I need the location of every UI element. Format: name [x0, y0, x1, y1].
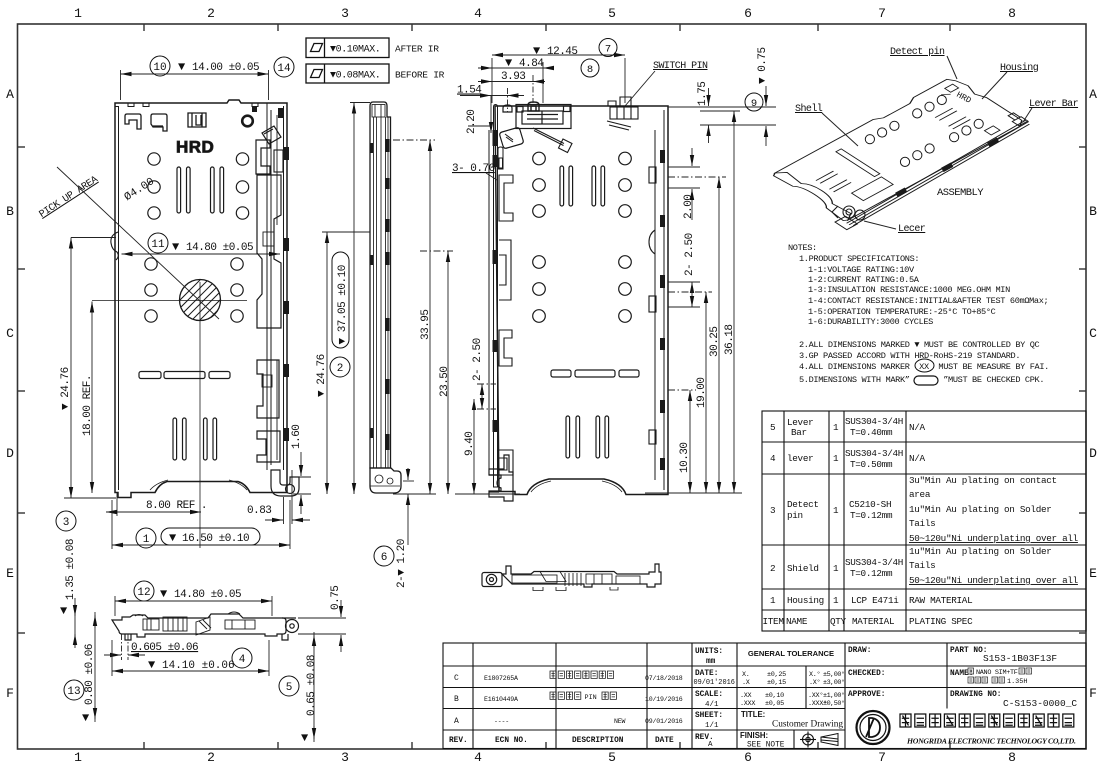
svg-text:C: C — [6, 326, 14, 341]
svg-text:.XX: .XX — [740, 692, 752, 700]
svg-text:4: 4 — [474, 750, 482, 765]
svg-text:Tails: Tails — [909, 518, 935, 529]
svg-text:APPROVE:: APPROVE: — [848, 691, 885, 699]
svg-text:▼: ▼ — [82, 711, 90, 725]
svg-text:area: area — [909, 489, 931, 500]
svg-text:14: 14 — [277, 63, 291, 75]
svg-text:12.45: 12.45 — [547, 46, 578, 58]
svg-text:REV.: REV. — [449, 737, 468, 745]
svg-text:D: D — [1089, 446, 1097, 461]
svg-text:3: 3 — [341, 6, 349, 21]
svg-text:A: A — [1089, 87, 1097, 102]
svg-text:S153-1B03F13F: S153-1B03F13F — [983, 653, 1057, 664]
svg-text:7: 7 — [878, 6, 886, 21]
svg-text:6: 6 — [381, 552, 388, 564]
svg-text:UNITS:: UNITS: — [695, 648, 723, 656]
svg-text:1.35H: 1.35H — [1007, 678, 1027, 686]
svg-text:▼: ▼ — [172, 240, 180, 254]
svg-text:0.75: 0.75 — [330, 586, 342, 610]
svg-text:T=0.12mm: T=0.12mm — [850, 510, 893, 521]
svg-text:4: 4 — [770, 453, 776, 464]
svg-text:HRD: HRD — [176, 138, 214, 157]
svg-text:30.25: 30.25 — [709, 326, 721, 357]
svg-text:1: 1 — [74, 6, 82, 21]
svg-text:3.93: 3.93 — [501, 71, 525, 83]
svg-text:12: 12 — [137, 587, 150, 599]
svg-text:2: 2 — [770, 563, 775, 574]
svg-text:±0,25: ±0,25 — [767, 671, 786, 679]
svg-text:NANO SIM+TF: NANO SIM+TF — [976, 669, 1018, 677]
svg-text:.X: .X — [742, 679, 750, 687]
svg-text:pin: pin — [787, 510, 803, 521]
svg-text:▼0.08MAX.: ▼0.08MAX. — [330, 71, 380, 82]
svg-text:ECN NO.: ECN NO. — [495, 737, 528, 745]
svg-text:Bar: Bar — [791, 427, 807, 438]
svg-text:13: 13 — [67, 686, 80, 698]
svg-text:4: 4 — [474, 6, 482, 21]
svg-text:BEFORE IR: BEFORE IR — [395, 70, 445, 81]
svg-text:SEE NOTE: SEE NOTE — [747, 742, 785, 750]
svg-text:▼: ▼ — [533, 44, 541, 58]
svg-text:1u″Min Au plating on Solder: 1u″Min Au plating on Solder — [909, 504, 1052, 515]
svg-text:▼ 24.76: ▼ 24.76 — [60, 367, 72, 410]
svg-text:1: 1 — [770, 595, 776, 606]
svg-text:Detect: Detect — [787, 499, 819, 510]
svg-text:F: F — [1089, 686, 1097, 701]
svg-text:5: 5 — [770, 422, 775, 433]
svg-text:Shield: Shield — [787, 563, 819, 574]
svg-text:4: 4 — [239, 654, 246, 666]
svg-text:±0,05: ±0,05 — [765, 700, 784, 708]
svg-text:DESCRIPTION: DESCRIPTION — [572, 737, 624, 745]
svg-text:B: B — [1089, 204, 1097, 219]
svg-text:CHECKED:: CHECKED: — [848, 670, 885, 678]
svg-text:SCALE:: SCALE: — [695, 691, 723, 699]
svg-text:6: 6 — [744, 750, 752, 765]
svg-text:FINISH:: FINISH: — [740, 731, 768, 740]
svg-text:▼0.10MAX.: ▼0.10MAX. — [330, 45, 380, 56]
svg-text:5: 5 — [608, 6, 616, 21]
svg-text:5: 5 — [608, 750, 616, 765]
svg-text:.XX°: .XX° — [808, 691, 823, 700]
svg-text:±1,00°: ±1,00° — [823, 691, 844, 700]
svg-text:DRAWING NO:: DRAWING NO: — [950, 691, 1001, 699]
svg-text:1/1: 1/1 — [705, 722, 719, 730]
svg-text:36.18: 36.18 — [724, 324, 736, 355]
svg-text:8.00 REF .: 8.00 REF . — [146, 500, 207, 512]
svg-text:C: C — [454, 674, 459, 683]
svg-text:▼: ▼ — [148, 658, 156, 672]
svg-text:SUS304-3/4H: SUS304-3/4H — [845, 557, 903, 568]
svg-text:DATE:: DATE: — [695, 670, 718, 678]
svg-text:0.83: 0.83 — [247, 505, 271, 517]
svg-text:mm: mm — [706, 658, 716, 666]
svg-text:8: 8 — [1008, 6, 1016, 21]
svg-text:N/A: N/A — [909, 453, 926, 464]
svg-text:1-3:INSULATION RESISTANCE:1000: 1-3:INSULATION RESISTANCE:1000 MEG.OHM M… — [808, 285, 1010, 295]
svg-text:Housing: Housing — [787, 595, 824, 606]
svg-text:▼ 0.75: ▼ 0.75 — [757, 47, 769, 84]
svg-text:14.00 ±0.05: 14.00 ±0.05 — [192, 62, 259, 74]
svg-text:A: A — [454, 717, 459, 726]
svg-text:1: 1 — [833, 563, 839, 574]
svg-text:1-2:CURRENT RATING:0.5A: 1-2:CURRENT RATING:0.5A — [808, 275, 920, 285]
svg-text:1.75: 1.75 — [697, 82, 709, 106]
svg-text:2: 2 — [207, 750, 215, 765]
svg-text:LCP E471i: LCP E471i — [851, 595, 899, 606]
svg-text:▼: ▼ — [505, 56, 513, 70]
svg-text:▼: ▼ — [160, 587, 168, 601]
svg-text:SWITCH PIN: SWITCH PIN — [653, 61, 708, 72]
svg-text:RAW MATERIAL: RAW MATERIAL — [909, 595, 972, 606]
svg-text:1: 1 — [833, 505, 839, 516]
svg-text:2: 2 — [207, 6, 215, 21]
svg-text:----: ---- — [494, 718, 509, 725]
svg-text:14.10 ±0.06: 14.10 ±0.06 — [162, 660, 235, 672]
svg-text:Customer Drawing: Customer Drawing — [772, 720, 843, 730]
svg-text:4.84: 4.84 — [519, 58, 544, 70]
svg-text:SHEET:: SHEET: — [695, 712, 723, 720]
svg-text:3: 3 — [770, 505, 775, 516]
svg-text:GENERAL TOLERANCE: GENERAL TOLERANCE — [748, 649, 834, 658]
svg-text:lever: lever — [787, 453, 813, 464]
svg-text:23.50: 23.50 — [439, 366, 451, 397]
svg-text:E: E — [6, 566, 14, 581]
svg-text:ASSEMBLY: ASSEMBLY — [937, 187, 984, 199]
svg-text:1: 1 — [833, 422, 839, 433]
svg-text:1.60: 1.60 — [291, 425, 303, 449]
svg-text:09/01'2016: 09/01'2016 — [694, 679, 735, 687]
svg-text:E1610449A: E1610449A — [484, 696, 518, 703]
svg-text:0.605 ±0.06: 0.605 ±0.06 — [131, 642, 198, 654]
svg-text:▼: ▼ — [301, 731, 309, 745]
svg-text:33.95: 33.95 — [420, 309, 432, 340]
svg-text:B: B — [6, 204, 14, 219]
svg-text:▼ 37.05 ±0.10: ▼ 37.05 ±0.10 — [337, 265, 349, 344]
svg-text:1: 1 — [143, 534, 150, 546]
svg-text:8: 8 — [587, 64, 593, 76]
svg-text:E1807265A: E1807265A — [484, 675, 518, 682]
svg-text:ITEM: ITEM — [763, 616, 784, 627]
svg-text:11: 11 — [151, 239, 165, 251]
svg-text:AFTER IR: AFTER IR — [395, 44, 439, 55]
svg-text:▼ 24.76: ▼ 24.76 — [316, 354, 328, 397]
svg-text:F: F — [6, 686, 14, 701]
svg-text:3: 3 — [63, 517, 70, 529]
svg-text:N/A: N/A — [909, 422, 926, 433]
svg-text:1-1:VOLTAGE RATING:10V: 1-1:VOLTAGE RATING:10V — [808, 265, 915, 275]
svg-text:3u″Min Au plating on contact: 3u″Min Au plating on contact — [909, 475, 1057, 486]
svg-text:3: 3 — [341, 750, 349, 765]
svg-text:50~120u″Ni underplating over a: 50~120u″Ni underplating over all — [909, 533, 1079, 544]
svg-text:QTY: QTY — [830, 616, 847, 627]
svg-text:SUS304-3/4H: SUS304-3/4H — [845, 448, 903, 459]
svg-text:±0,50°: ±0,50° — [823, 699, 844, 708]
svg-text:MATERIAL: MATERIAL — [852, 616, 894, 627]
svg-text:2.ALL DIMENSIONS MARKED ▼ MUST: 2.ALL DIMENSIONS MARKED ▼ MUST BE CONTRO… — [799, 340, 1040, 350]
svg-text:SUS304-3/4H: SUS304-3/4H — [845, 416, 903, 427]
svg-text:4.ALL DIMENSIONS MARKER XX M: 4.ALL DIMENSIONS MARKER XX MUST BE MEASU… — [799, 362, 1049, 372]
svg-text:Lever Bar: Lever Bar — [1029, 99, 1079, 110]
svg-text:▼: ▼ — [60, 604, 68, 618]
svg-text:10: 10 — [153, 62, 166, 74]
svg-text:PIN: PIN — [585, 694, 597, 702]
svg-text:2- 2.50: 2- 2.50 — [684, 233, 696, 276]
svg-text:9: 9 — [751, 98, 757, 110]
svg-text:1.PRODUCT SPECIFICATIONS:: 1.PRODUCT SPECIFICATIONS: — [799, 254, 919, 264]
svg-text:1-5:OPERATION TEMPERATURE:-25°: 1-5:OPERATION TEMPERATURE:-25°C TO+85°C — [808, 307, 996, 317]
svg-text:Detect pin: Detect pin — [890, 46, 945, 58]
svg-text:X.°: X.° — [809, 670, 820, 679]
svg-text:▼: ▼ — [178, 60, 186, 74]
svg-text:B: B — [454, 695, 459, 704]
svg-text:T=0.50mm: T=0.50mm — [850, 459, 893, 470]
svg-text:DRAW:: DRAW: — [848, 647, 871, 655]
svg-text:1u″Min Au plating on Solder: 1u″Min Au plating on Solder — [909, 546, 1052, 557]
svg-text:4/1: 4/1 — [705, 701, 719, 709]
svg-text:8: 8 — [1008, 750, 1016, 765]
svg-text:14.80 ±0.05: 14.80 ±0.05 — [186, 242, 253, 254]
svg-text:C: C — [1089, 326, 1097, 341]
svg-text:7: 7 — [878, 750, 886, 765]
svg-text:Shell: Shell — [795, 103, 823, 115]
svg-text:2: 2 — [337, 363, 344, 375]
svg-text:1-4:CONTACT RESISTANCE:INITIAL: 1-4:CONTACT RESISTANCE:INITIAL&AFTER TES… — [808, 296, 1048, 306]
svg-text:D: D — [6, 446, 14, 461]
svg-text:PART NO:: PART NO: — [950, 647, 987, 655]
svg-text:1: 1 — [833, 595, 839, 606]
svg-text:10.30: 10.30 — [679, 442, 691, 473]
svg-text:0.80 ±0.06: 0.80 ±0.06 — [84, 644, 96, 705]
svg-text:07/18/2018: 07/18/2018 — [645, 675, 683, 682]
svg-text:2- 2.50: 2- 2.50 — [472, 338, 484, 381]
svg-text:X.: X. — [742, 671, 750, 679]
svg-text:6: 6 — [744, 6, 752, 21]
svg-text:Housing: Housing — [1000, 62, 1039, 74]
svg-text:16.50 ±0.10: 16.50 ±0.10 — [182, 533, 249, 545]
svg-text:TITLE:: TITLE: — [741, 710, 765, 719]
svg-text:.X°: .X° — [809, 678, 820, 687]
svg-text:14.80 ±0.05: 14.80 ±0.05 — [174, 589, 241, 601]
svg-text:3.GP PASSED ACCORD WITH HRD-Ro: 3.GP PASSED ACCORD WITH HRD-RoHS-219 STA… — [799, 351, 1020, 361]
svg-text:1-6:DURABILITY:3000 CYCLES: 1-6:DURABILITY:3000 CYCLES — [808, 317, 933, 327]
svg-text:Lecer: Lecer — [898, 224, 926, 235]
svg-text:A: A — [6, 87, 14, 102]
svg-text:±3,00°: ±3,00° — [823, 678, 844, 687]
svg-text:0.65 ±0.08: 0.65 ±0.08 — [306, 655, 318, 716]
svg-text:Tails: Tails — [909, 560, 935, 571]
svg-text:5: 5 — [286, 682, 293, 694]
svg-text:1.54: 1.54 — [457, 85, 482, 97]
svg-text:9.40: 9.40 — [464, 432, 476, 456]
svg-text:1: 1 — [833, 453, 839, 464]
svg-text:±0,10: ±0,10 — [765, 692, 784, 700]
svg-text:18.00 REF.: 18.00 REF. — [82, 375, 94, 436]
svg-text:7: 7 — [605, 44, 611, 56]
svg-text:3- 0.70: 3- 0.70 — [452, 163, 495, 175]
svg-text:C-S153-0000_C: C-S153-0000_C — [1003, 698, 1077, 709]
svg-text:1: 1 — [74, 750, 82, 765]
svg-text:09/01/2016: 09/01/2016 — [645, 718, 683, 725]
svg-text:1.35 ±0.08: 1.35 ±0.08 — [65, 539, 77, 600]
svg-text:▼: ▼ — [169, 531, 177, 545]
svg-text:T=0.12mm: T=0.12mm — [850, 568, 893, 579]
svg-text:DATE: DATE — [655, 737, 674, 745]
svg-text:PLATING SPEC: PLATING SPEC — [909, 616, 973, 627]
svg-text:NAME: NAME — [786, 616, 808, 627]
svg-text:2-▼ 1.20: 2-▼ 1.20 — [396, 539, 408, 588]
svg-text:2.20: 2.20 — [466, 110, 478, 134]
svg-text:E: E — [1089, 566, 1097, 581]
svg-text:A: A — [708, 741, 713, 749]
svg-text:50~120u″Ni underplating over a: 50~120u″Ni underplating over all — [909, 575, 1079, 586]
svg-text:NOTES:: NOTES: — [788, 243, 817, 253]
svg-text:2.00: 2.00 — [683, 195, 695, 219]
svg-text:T=0.40mm: T=0.40mm — [850, 427, 893, 438]
svg-text:NEW: NEW — [614, 718, 626, 725]
svg-text:HONGRIDA ELECTRONIC TECHNOLOGY: HONGRIDA ELECTRONIC TECHNOLOGY CO,LTD. — [906, 737, 1076, 746]
svg-text:C5210-SH: C5210-SH — [849, 499, 891, 510]
svg-text:.XXX: .XXX — [740, 700, 755, 708]
svg-text:19.00: 19.00 — [696, 377, 708, 408]
svg-text:±0,15: ±0,15 — [767, 679, 786, 687]
svg-text:10/19/2016: 10/19/2016 — [645, 696, 683, 703]
svg-text:±5,00°: ±5,00° — [823, 670, 844, 679]
